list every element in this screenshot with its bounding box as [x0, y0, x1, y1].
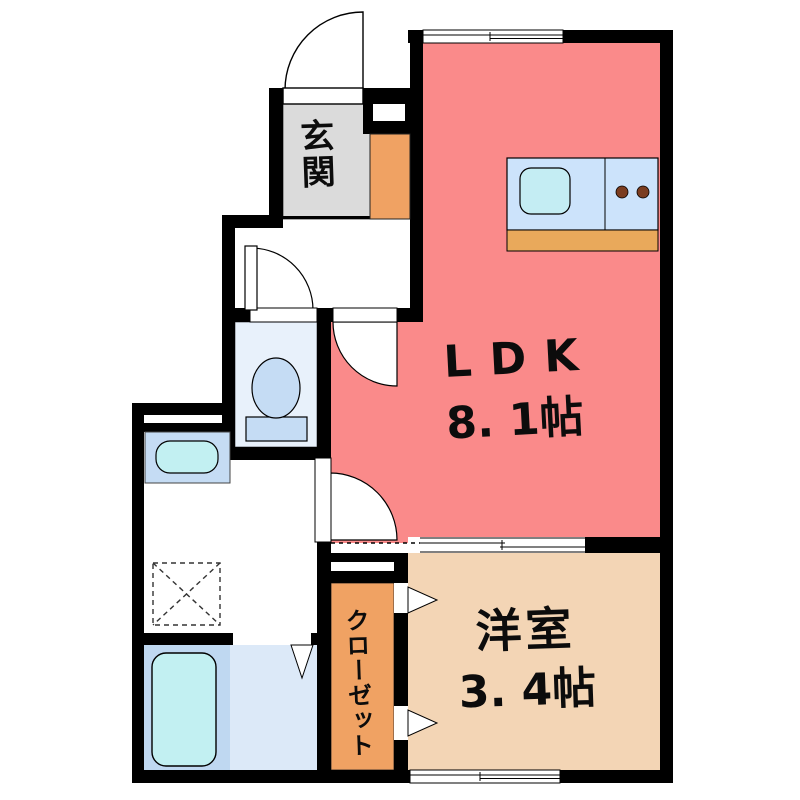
wall-left-lower: [132, 403, 144, 783]
floorplan-drawing: [0, 0, 800, 800]
closet-door-opening-bottom: [394, 706, 408, 740]
bathtub: [152, 653, 216, 766]
burner-left: [616, 186, 628, 198]
closet-door-opening-top: [394, 583, 408, 613]
toilet-door-threshold: [250, 308, 317, 322]
toilet-door-leaf: [245, 246, 257, 310]
wall-hall-bottom-b: [317, 308, 333, 322]
toilet-tank: [246, 417, 307, 441]
closet-floor: [331, 583, 394, 770]
window-top: [423, 30, 563, 43]
wall-partition-right: [585, 537, 660, 553]
washroom-door-leaf: [315, 458, 331, 542]
wall-right: [660, 30, 673, 783]
wall-bottom: [132, 770, 673, 783]
washing-machine-space: [153, 563, 220, 625]
entrance-floor: [283, 104, 370, 219]
toilet-door-swing: [251, 248, 313, 310]
kitchen-sink: [520, 168, 570, 214]
wall-niche: [373, 104, 405, 121]
shoe-cabinet: [370, 134, 410, 219]
floorplan: 玄関 LDK 8. 1帖 洋室 3. 4帖 クローゼット: [0, 0, 800, 800]
kitchen-base: [507, 230, 658, 251]
toilet-bowl: [252, 358, 300, 418]
entry-door-leaf: [283, 88, 363, 104]
bathroom-door-opening: [233, 633, 311, 645]
wall-washroom-ldk-upper: [317, 322, 331, 460]
kitchen-counter: [507, 158, 658, 251]
bedroom-floor: [408, 553, 660, 770]
ldk-door-threshold: [333, 308, 397, 322]
wall-closet-left: [317, 540, 331, 770]
wall-washroom-top-b: [144, 423, 225, 432]
burner-right: [637, 186, 649, 198]
wall-hall-bottom-c: [397, 308, 411, 322]
window-bottom: [410, 770, 560, 783]
wall-washroom-top-a: [132, 403, 225, 415]
wall-entrance-left: [269, 88, 283, 219]
entry-door-swing: [285, 12, 363, 90]
washbasin: [145, 432, 230, 483]
wall-closet-top-a: [331, 553, 394, 562]
wall-ldk-left: [410, 30, 423, 322]
